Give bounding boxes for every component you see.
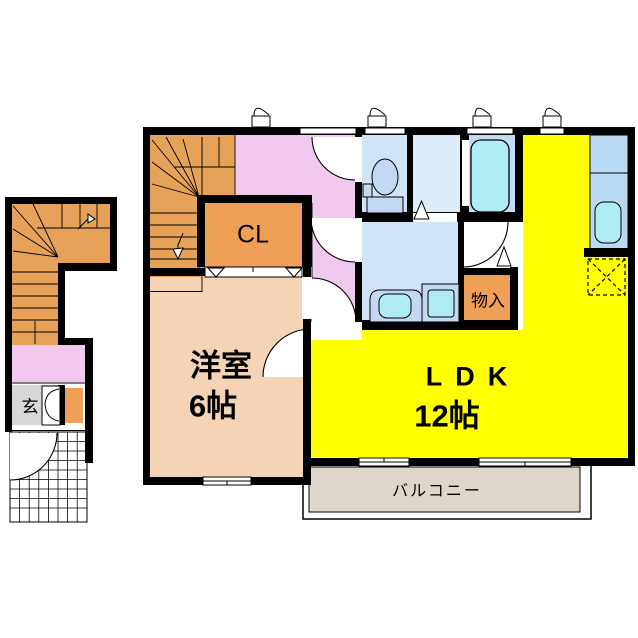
washbasin-fixture [370, 290, 422, 322]
closet-label: CL [237, 221, 269, 250]
kitchen-sink-fixture [595, 202, 621, 243]
vent-window-symbols [252, 108, 561, 127]
floor-plan-canvas: CL 洋室 6帖 LDK 12帖 物入 玄 バルコニー [0, 0, 638, 638]
bathtub-fixture [471, 140, 509, 212]
western-room-size: 6帖 [189, 381, 237, 426]
balcony-label: バルコニー [392, 477, 482, 501]
floor-plan-drawing [0, 0, 638, 638]
entrance-door [42, 386, 60, 425]
storage-label: 物入 [471, 287, 505, 312]
ldk-left-strip [311, 340, 362, 457]
entrance-side-block [65, 388, 83, 423]
ldk-size: 12帖 [414, 391, 479, 436]
washing-machine-fixture [422, 284, 459, 322]
western-room-label: 洋室 [190, 341, 252, 386]
left-stair-upper [12, 204, 110, 263]
left-hall [12, 345, 85, 382]
linen-room [413, 135, 460, 215]
hall-ldk-threshold [311, 322, 362, 340]
ldk-label: LDK [426, 362, 521, 393]
entrance-label: 玄 [22, 393, 39, 418]
